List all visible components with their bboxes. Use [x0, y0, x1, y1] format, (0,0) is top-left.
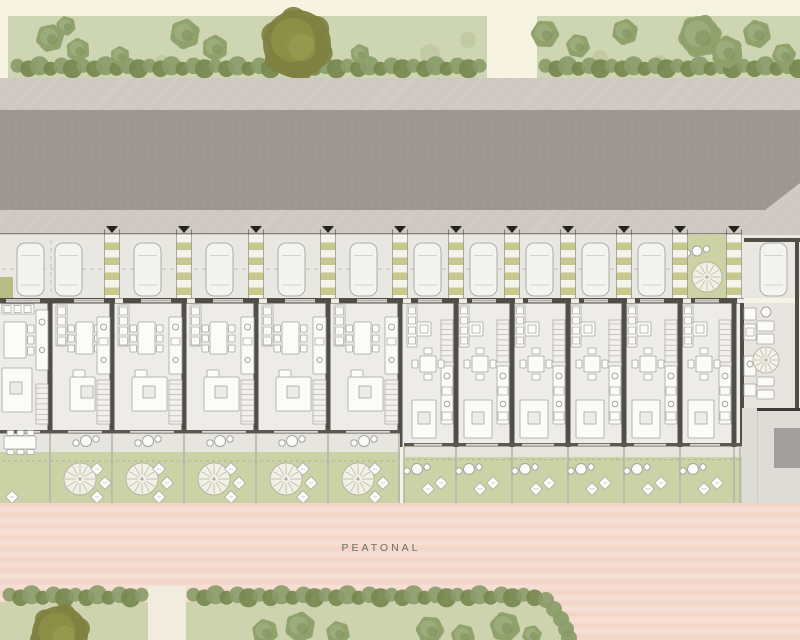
entry-walkway	[105, 235, 120, 303]
gardens-right	[403, 447, 742, 503]
entry-walkway	[673, 235, 688, 303]
stairs	[441, 320, 453, 362]
stairs	[313, 380, 326, 424]
street-label-layer: PEATONAL	[341, 542, 420, 554]
parked-car	[582, 243, 609, 296]
courtyard-bay	[684, 235, 726, 298]
stairs	[497, 320, 509, 362]
bottom-landscape	[0, 585, 577, 640]
stairs	[97, 380, 110, 424]
entry-walkway	[561, 235, 576, 303]
parked-car	[350, 243, 377, 296]
corner-plaza	[742, 408, 800, 503]
garden-tree-symbol	[692, 262, 722, 292]
parked-car	[470, 243, 497, 296]
entry-walkway	[249, 235, 264, 303]
parking-strip	[0, 235, 800, 303]
garden-tree-symbol	[342, 463, 374, 495]
hedge-bush	[135, 588, 149, 602]
entry-walkway	[505, 235, 520, 303]
parked-car	[760, 243, 787, 296]
stairs	[665, 320, 677, 362]
stairs	[609, 320, 621, 362]
entry-walkway	[617, 235, 632, 303]
entry-walkway	[321, 235, 336, 303]
parked-car	[638, 243, 665, 296]
gardens-left	[0, 431, 400, 509]
stairs	[241, 380, 254, 424]
entry-walkway	[449, 235, 464, 303]
stairs	[169, 380, 182, 424]
vehicular-street	[0, 78, 800, 235]
garden-tree-symbol	[270, 463, 302, 495]
garden-tree-symbol	[198, 463, 230, 495]
entry-walkway	[393, 235, 408, 303]
entry-walkway	[177, 235, 192, 303]
garden-tree-symbol	[753, 347, 779, 373]
stairs	[36, 384, 48, 424]
stairs	[719, 320, 731, 362]
parked-car	[414, 243, 441, 296]
stairs	[385, 380, 398, 424]
parked-car	[278, 243, 305, 296]
parked-car	[526, 243, 553, 296]
lawn-shadow-spot	[460, 32, 476, 48]
hedge-bush	[473, 59, 487, 73]
parked-car	[17, 243, 44, 296]
parked-car	[134, 243, 161, 296]
site-plan: PEATONAL	[0, 0, 800, 640]
street-label: PEATONAL	[341, 542, 420, 554]
top-landscape	[8, 7, 800, 81]
entry-walkway	[727, 235, 742, 303]
garden-tree-symbol	[126, 463, 158, 495]
site-plan-drawing: PEATONAL	[0, 0, 800, 640]
parked-car	[206, 243, 233, 296]
stairs	[553, 320, 565, 362]
garden-tree-symbol	[64, 463, 96, 495]
parked-car	[55, 243, 82, 296]
